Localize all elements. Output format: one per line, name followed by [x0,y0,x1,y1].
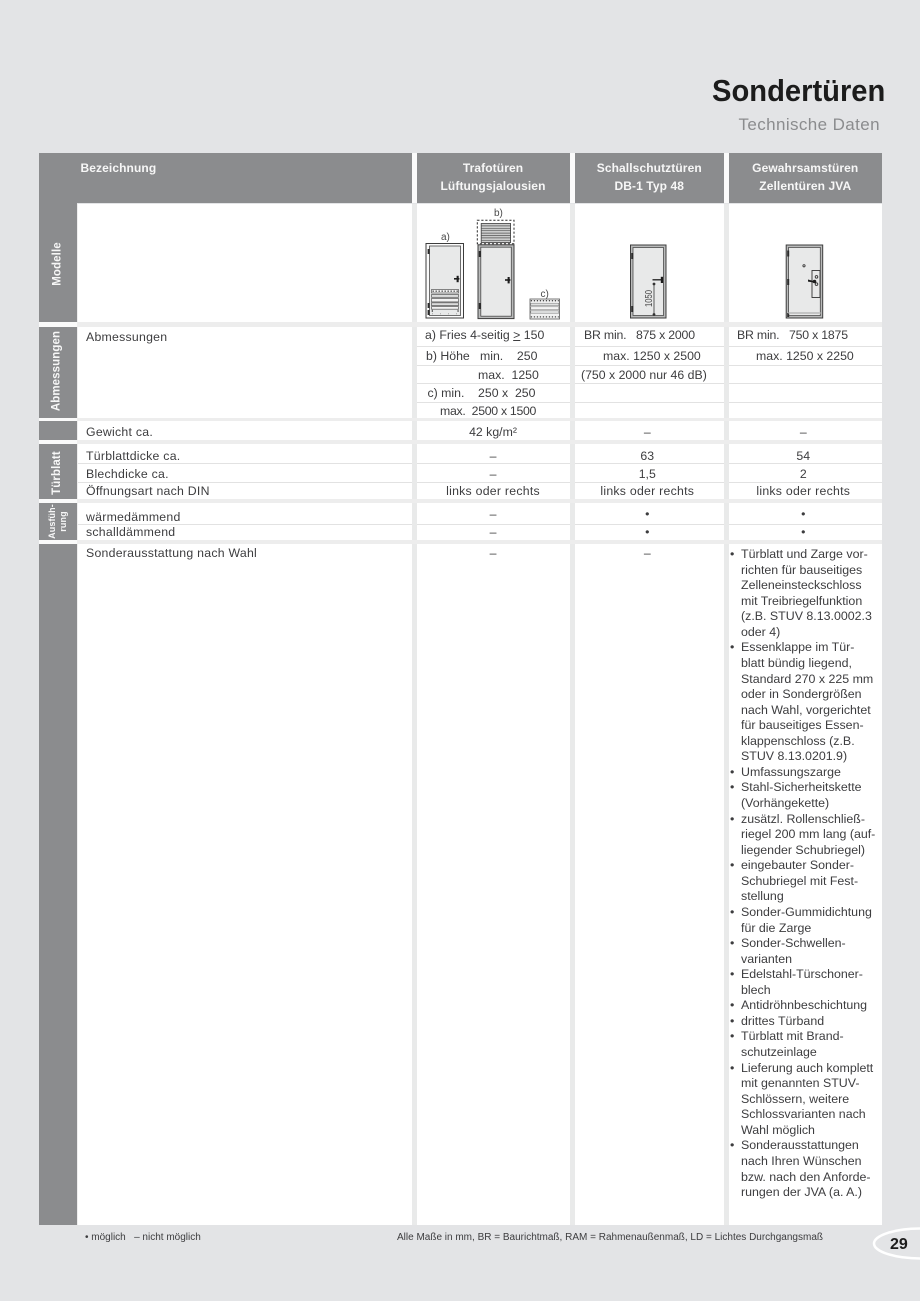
svg-text:29: 29 [890,1236,908,1253]
svg-text:1050: 1050 [644,289,655,306]
